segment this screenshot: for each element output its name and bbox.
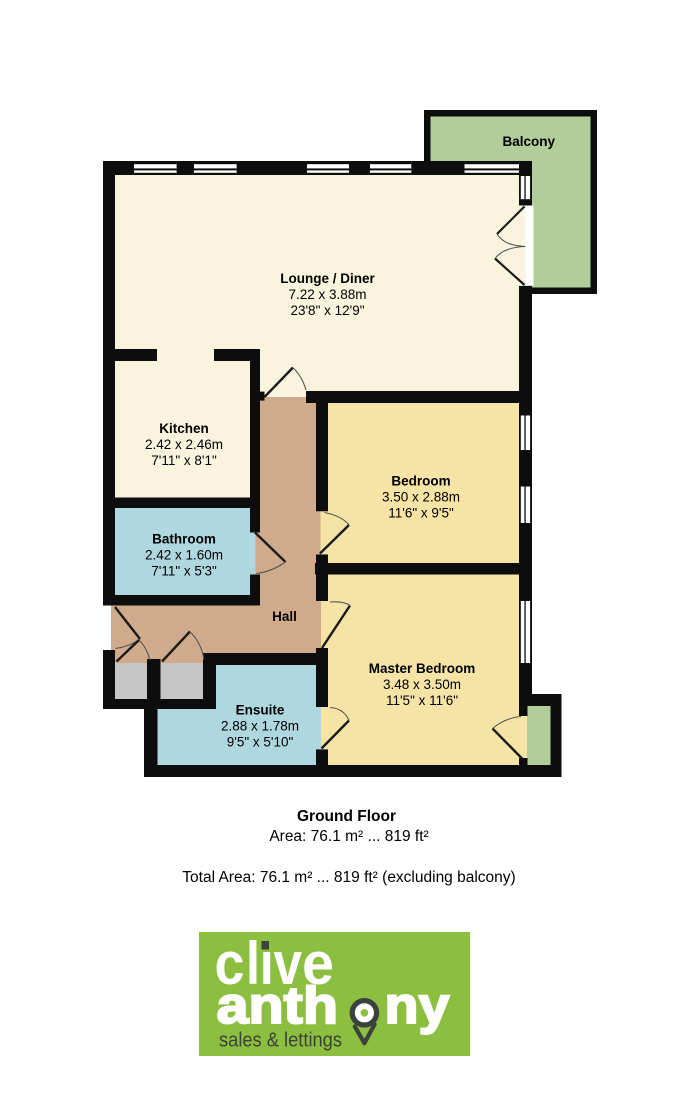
svg-text:Lounge / Diner: Lounge / Diner bbox=[280, 271, 375, 286]
svg-text:Ensuite: Ensuite bbox=[236, 703, 285, 718]
svg-text:3.50 x 2.88m: 3.50 x 2.88m bbox=[382, 490, 460, 505]
svg-text:Bedroom: Bedroom bbox=[391, 474, 450, 489]
svg-text:2.42 x 2.46m: 2.42 x 2.46m bbox=[145, 437, 223, 452]
svg-text:Bathroom: Bathroom bbox=[152, 532, 216, 547]
svg-text:2.88 x 1.78m: 2.88 x 1.78m bbox=[221, 719, 299, 734]
svg-text:3.48 x 3.50m: 3.48 x 3.50m bbox=[383, 677, 461, 692]
svg-text:Balcony: Balcony bbox=[502, 134, 555, 149]
svg-text:anth: anth bbox=[217, 977, 339, 1035]
svg-text:Area: 76.1 m² ... 819 ft²: Area: 76.1 m² ... 819 ft² bbox=[269, 828, 428, 845]
svg-text:11'6" x 9'5": 11'6" x 9'5" bbox=[388, 506, 454, 521]
svg-text:23'8" x 12'9": 23'8" x 12'9" bbox=[290, 303, 364, 318]
svg-text:9'5" x 5'10": 9'5" x 5'10" bbox=[227, 735, 294, 750]
svg-text:Ground Floor: Ground Floor bbox=[297, 808, 396, 825]
svg-text:Kitchen: Kitchen bbox=[159, 421, 209, 436]
svg-text:Total Area: 76.1 m² ... 819 ft: Total Area: 76.1 m² ... 819 ft² (excludi… bbox=[182, 869, 515, 886]
svg-text:7'11" x 5'3": 7'11" x 5'3" bbox=[151, 564, 217, 579]
svg-text:11'5" x 11'6": 11'5" x 11'6" bbox=[386, 693, 458, 708]
svg-text:7'11" x 8'1": 7'11" x 8'1" bbox=[151, 453, 217, 468]
svg-text:ny: ny bbox=[385, 977, 450, 1035]
svg-text:2.42 x 1.60m: 2.42 x 1.60m bbox=[145, 548, 223, 563]
svg-text:Master Bedroom: Master Bedroom bbox=[369, 661, 476, 676]
svg-text:Hall: Hall bbox=[272, 609, 297, 624]
svg-text:sales & lettings: sales & lettings bbox=[219, 1030, 342, 1052]
svg-text:7.22 x 3.88m: 7.22 x 3.88m bbox=[288, 287, 366, 302]
